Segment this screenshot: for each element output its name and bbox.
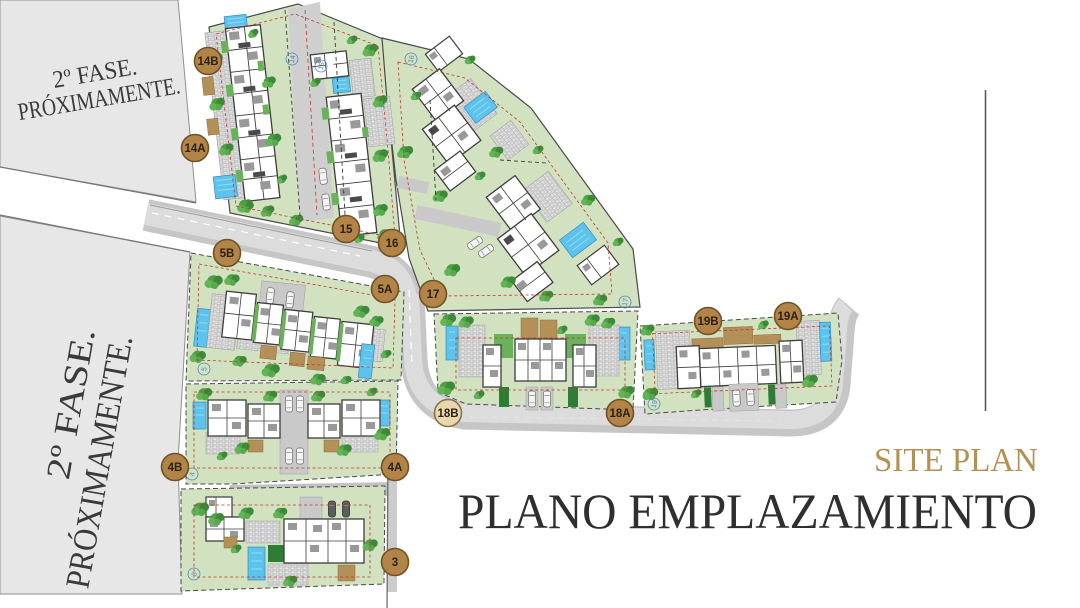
svg-text:5B: 5B bbox=[220, 248, 235, 260]
svg-text:16: 16 bbox=[408, 55, 416, 64]
svg-text:4B: 4B bbox=[168, 462, 183, 474]
svg-text:14: 14 bbox=[289, 55, 297, 64]
svg-text:18B: 18B bbox=[437, 408, 458, 420]
svg-text:15: 15 bbox=[318, 62, 326, 71]
svg-text:16: 16 bbox=[386, 238, 399, 250]
svg-text:4A: 4A bbox=[388, 462, 403, 474]
svg-text:19: 19 bbox=[651, 400, 659, 409]
svg-text:18A: 18A bbox=[609, 408, 630, 420]
svg-text:15: 15 bbox=[340, 224, 353, 236]
svg-text:3: 3 bbox=[392, 557, 398, 569]
svg-text:5A: 5A bbox=[378, 284, 393, 296]
svg-text:14A: 14A bbox=[184, 143, 205, 155]
svg-text:19A: 19A bbox=[777, 311, 798, 323]
svg-text:17: 17 bbox=[427, 289, 440, 301]
svg-text:14B: 14B bbox=[197, 56, 218, 68]
svg-text:17: 17 bbox=[622, 298, 630, 307]
svg-text:SITE PLAN: SITE PLAN bbox=[874, 442, 1038, 479]
svg-text:PLANO EMPLAZAMIENTO: PLANO EMPLAZAMIENTO bbox=[458, 483, 1037, 539]
svg-text:19B: 19B bbox=[697, 316, 718, 328]
